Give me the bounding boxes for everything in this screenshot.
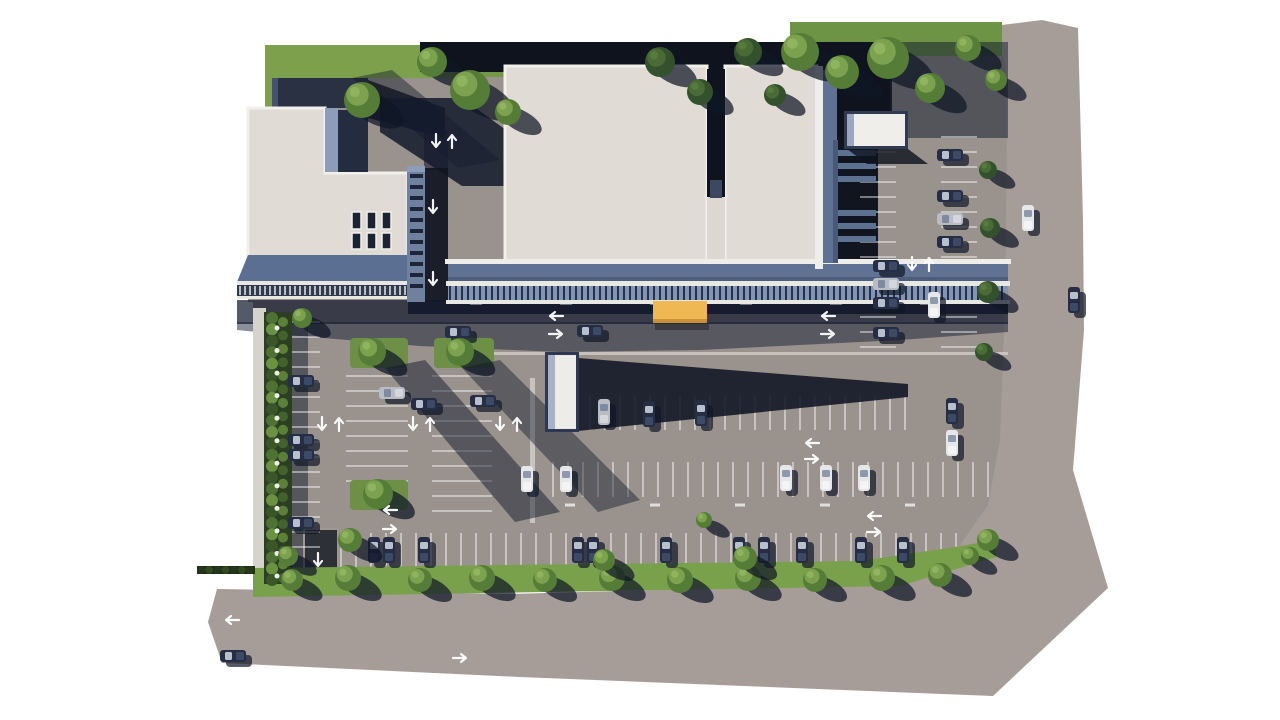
tree-highlight — [422, 51, 430, 59]
hedge-foliage — [278, 438, 288, 448]
hedge-foliage — [278, 533, 288, 543]
parked-car-roof — [600, 415, 608, 423]
parked-car-glass — [798, 542, 806, 549]
hedge-flowers — [275, 393, 280, 398]
hedge-flowers — [275, 574, 280, 579]
building-main-gap-notch — [710, 180, 722, 198]
hedge-foliage — [278, 411, 288, 421]
tree-highlight — [807, 571, 814, 578]
hedge-flowers — [275, 416, 280, 421]
skylight — [352, 212, 361, 229]
tree-highlight — [473, 569, 480, 576]
parked-car-glass — [416, 400, 423, 408]
hedge-flowers — [275, 461, 280, 466]
moving-car-roof — [236, 652, 244, 660]
skylight — [367, 212, 376, 229]
canopy-edge-white — [446, 300, 1010, 304]
hedge-bar-foliage — [238, 566, 246, 574]
hedge-bar-foliage — [230, 566, 238, 574]
canopy-parapet — [446, 281, 1010, 286]
site-plan-svg — [0, 0, 1280, 720]
parked-car-roof — [953, 215, 961, 223]
hedge-flowers — [275, 348, 280, 353]
tree-highlight — [989, 72, 995, 78]
parked-car-glass — [600, 404, 608, 411]
hedge-foliage — [278, 465, 288, 475]
tree-highlight — [874, 43, 886, 55]
tree-highlight — [339, 569, 346, 576]
parked-car-glass — [420, 542, 428, 549]
parked-car-glass — [662, 542, 670, 549]
tree-highlight — [342, 531, 349, 538]
hedge-foliage — [266, 449, 278, 461]
parked-car-roof — [562, 482, 570, 490]
building-west-eave — [237, 281, 408, 285]
parked-car-roof — [486, 397, 494, 405]
tree-highlight — [873, 569, 880, 576]
parked-car-roof — [304, 451, 312, 459]
stair-tower-top — [407, 166, 425, 172]
hedge-foliage — [278, 506, 288, 516]
hedge-foliage — [266, 426, 278, 438]
hedge-foliage — [278, 519, 288, 529]
hedge-foliage — [278, 479, 288, 489]
hedge-foliage — [266, 380, 278, 392]
hedge-foliage — [278, 357, 288, 367]
bush-highlight — [981, 532, 987, 538]
parked-car-glass — [942, 192, 949, 200]
hedge-foliage — [278, 330, 288, 340]
outbuilding-roof — [847, 114, 905, 146]
building-west-attachment — [325, 108, 338, 172]
parked-car-roof — [782, 481, 790, 489]
site-plan-rendering — [0, 0, 1280, 720]
parked-car-glass — [384, 389, 391, 397]
parked-car-roof — [385, 553, 393, 561]
parked-car-roof — [420, 553, 428, 561]
skylight — [352, 233, 361, 249]
parked-car-glass — [878, 262, 885, 270]
hedge-foliage — [266, 358, 278, 370]
parked-car-glass — [385, 542, 393, 549]
yellow-canopy-edge — [653, 319, 707, 323]
moving-car-glass — [930, 297, 938, 304]
tree-highlight — [737, 549, 744, 556]
moving-car-roof — [1024, 221, 1032, 229]
parked-car-glass — [760, 542, 768, 549]
parked-car-glass — [782, 470, 790, 477]
tree-dark-highlight — [691, 83, 698, 90]
hedge-flowers — [275, 528, 280, 533]
hedge-foliage — [278, 492, 288, 502]
hedge-foliage — [278, 398, 288, 408]
covered-stall-bar — [838, 176, 876, 182]
curb-line-front — [460, 352, 1008, 355]
moving-car-roof — [593, 327, 601, 335]
skylight — [382, 212, 391, 229]
parked-car-roof — [697, 416, 705, 424]
parked-car-roof — [395, 389, 403, 397]
parked-car-roof — [427, 400, 435, 408]
parked-car-glass — [878, 280, 885, 288]
hedge-bar-foliage — [213, 566, 221, 574]
moving-car-roof — [461, 328, 469, 336]
parked-car-roof — [304, 377, 312, 385]
building-west-colonnade-edge — [237, 296, 408, 299]
parked-car-glass — [860, 470, 868, 477]
hedge-flowers — [275, 371, 280, 376]
hedge-flowers — [275, 326, 280, 331]
tree-highlight — [830, 60, 840, 70]
tree-highlight — [350, 87, 360, 97]
parked-car-roof — [953, 151, 961, 159]
tree-highlight — [597, 552, 603, 558]
hedge-bar-foliage — [246, 566, 254, 574]
moving-car-glass — [450, 328, 457, 336]
parked-car-roof — [860, 481, 868, 489]
hedge-foliage — [278, 317, 288, 327]
kiosk-roof-edge — [548, 355, 555, 429]
hedge-foliage — [266, 517, 278, 529]
parked-car-glass — [293, 377, 300, 385]
parked-car-roof — [857, 553, 865, 561]
tree-highlight — [920, 77, 928, 85]
parked-car-roof — [304, 519, 312, 527]
tree-dark-highlight — [768, 87, 774, 93]
hedge-foliage — [278, 344, 288, 354]
parked-car-glass — [293, 519, 300, 527]
tree-highlight — [285, 572, 291, 578]
hedge-foliage — [266, 494, 278, 506]
hedge-bar-foliage — [222, 566, 230, 574]
tree-highlight — [671, 571, 678, 578]
parked-car-roof — [574, 553, 582, 561]
bush-highlight — [978, 345, 983, 350]
tree-highlight — [959, 39, 966, 46]
hedge-foliage — [266, 403, 278, 415]
parked-car-glass — [822, 470, 830, 477]
parked-car-glass — [948, 403, 956, 410]
hedge-foliage — [278, 384, 288, 394]
parked-car-roof — [899, 553, 907, 561]
building-west-court — [338, 110, 368, 172]
lower-roof-block-lip — [272, 78, 278, 108]
tree-dark-highlight — [738, 42, 746, 50]
parked-car-roof — [889, 329, 897, 337]
building-main-gap-link — [707, 197, 725, 267]
covered-stall-wall — [833, 140, 838, 263]
parked-car-glass — [878, 329, 885, 337]
moving-car-glass — [582, 327, 589, 335]
hedge-flowers — [275, 438, 280, 443]
parked-car-glass — [574, 542, 582, 549]
covered-stall-bar — [838, 223, 876, 229]
parked-car-glass — [475, 397, 482, 405]
covered-stall-bar — [838, 236, 876, 242]
hedge-foliage — [266, 563, 278, 575]
parked-car-glass — [948, 435, 956, 442]
tree-dark-highlight — [650, 51, 658, 59]
building-west-colonnade — [237, 285, 408, 296]
parked-car-roof — [662, 553, 670, 561]
parked-car-glass — [523, 471, 531, 478]
building-main-facade-shade — [448, 277, 1008, 281]
parked-car-glass — [293, 451, 300, 459]
hedge-foliage — [278, 371, 288, 381]
tree-highlight — [295, 311, 301, 317]
tree-highlight — [537, 571, 544, 578]
parked-car-roof — [304, 436, 312, 444]
hedge-bar-foliage — [197, 566, 205, 574]
parked-car-roof — [1070, 303, 1078, 311]
bush-highlight — [982, 163, 987, 168]
parked-car-glass — [562, 471, 570, 478]
hedge-foliage — [266, 540, 278, 552]
parked-car-glass — [645, 406, 653, 413]
hedge-foliage — [278, 425, 288, 435]
skylight — [367, 233, 376, 249]
yellow-canopy-shadow — [655, 324, 709, 330]
parked-car-roof — [953, 192, 961, 200]
bush-highlight — [981, 284, 987, 290]
tree-highlight — [456, 75, 467, 86]
parked-car-roof — [798, 553, 806, 561]
hedge-foliage — [266, 335, 278, 347]
hedge-foliage — [266, 312, 278, 324]
parked-car-roof — [889, 299, 897, 307]
moving-car-roof — [930, 308, 938, 316]
tree-highlight — [450, 342, 458, 350]
tree-highlight — [787, 38, 798, 49]
parked-car-glass — [942, 151, 949, 159]
moving-car-glass — [225, 652, 232, 660]
parked-car-glass — [697, 405, 705, 412]
parked-car-roof — [889, 280, 897, 288]
bush-highlight — [699, 514, 703, 518]
tree-highlight — [499, 103, 506, 110]
hedge-flowers — [275, 506, 280, 511]
hedge-flowers — [275, 483, 280, 488]
parked-car-glass — [942, 238, 949, 246]
tree-highlight — [281, 549, 287, 555]
outbuilding-roof-edge — [847, 114, 854, 146]
parked-car-glass — [899, 542, 907, 549]
bush-highlight — [983, 221, 989, 227]
bush-highlight — [964, 549, 969, 554]
moving-car-glass — [1024, 210, 1032, 217]
skylight — [382, 233, 391, 249]
tree-highlight — [412, 571, 419, 578]
parked-car-roof — [889, 262, 897, 270]
parked-car-roof — [645, 417, 653, 425]
parked-car-glass — [293, 436, 300, 444]
covered-stall-bar — [838, 210, 876, 216]
parked-car-glass — [589, 542, 597, 549]
parked-car-glass — [857, 542, 865, 549]
building-main-left-roof — [505, 66, 707, 265]
hedge-foliage — [266, 471, 278, 483]
tree-highlight — [362, 342, 370, 350]
parked-car-roof — [822, 481, 830, 489]
parked-car-glass — [878, 299, 885, 307]
parked-car-glass — [942, 215, 949, 223]
tree-highlight — [932, 566, 939, 573]
tree-highlight — [368, 483, 376, 491]
hedge-foliage — [278, 452, 288, 462]
parked-car-roof — [948, 446, 956, 454]
parked-car-glass — [1070, 292, 1078, 299]
building-east-parapet — [815, 66, 823, 269]
parked-car-roof — [953, 238, 961, 246]
parked-car-roof — [948, 414, 956, 422]
hedge-bar-foliage — [205, 566, 213, 574]
building-west-slope-roof — [237, 255, 408, 282]
parked-car-roof — [523, 482, 531, 490]
